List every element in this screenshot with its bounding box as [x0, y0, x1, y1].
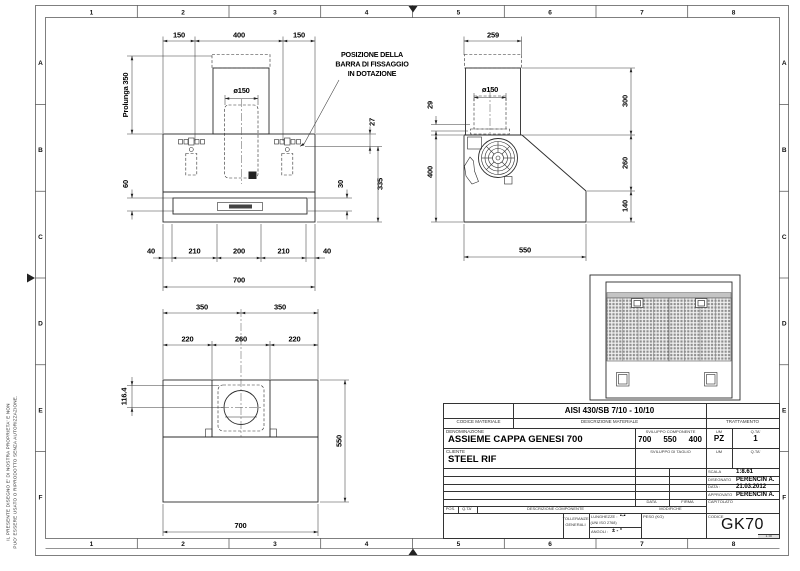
lamps	[617, 373, 718, 387]
dim-29: 29	[426, 101, 435, 109]
col-label: 4	[365, 541, 369, 548]
dim-27: 27	[368, 118, 377, 126]
col-label: 1	[90, 541, 94, 548]
note-line2: BARRA DI FISSAGGIO	[335, 60, 409, 69]
data-value: 21.03.2012	[736, 484, 766, 490]
dim-260: 260	[621, 157, 630, 169]
approvato-value: PERENCIN A.	[736, 492, 774, 498]
pos-label: POS.	[444, 507, 457, 511]
sviluppo-700: 700	[638, 436, 651, 444]
col-label: 7	[640, 10, 644, 17]
scala-label: SCALA	[708, 470, 721, 474]
plan-view: 350 350 220 260 220 116.4 550 700	[120, 303, 350, 537]
drawing-sheet: 1 2 3 4 5 6 7 8 1 2 3 4 5 6 7 8 A B C D …	[0, 0, 800, 566]
row-label: C	[782, 234, 787, 241]
row-label: A	[38, 60, 43, 67]
sviluppo-400: 400	[689, 436, 702, 444]
firma-label: FIRMA	[669, 500, 706, 504]
dim-prolunga: Prolunga 350	[121, 73, 130, 118]
dim-150-left: 150	[173, 31, 185, 40]
denominazione-value: ASSIEME CAPPA GENESI 700	[448, 435, 583, 445]
angoli-value: ± - °	[612, 529, 622, 535]
col-label: 2	[181, 541, 185, 548]
dim-140: 140	[621, 200, 630, 212]
fixing-bracket-right	[275, 138, 301, 175]
lunghezze-value: ▪-▪	[620, 514, 626, 520]
dim-30: 30	[336, 180, 345, 188]
material-spec: AISI 430/SB 7/10 - 10/10	[513, 407, 706, 415]
dim-550-side: 550	[519, 246, 531, 255]
note-line1: POSIZIONE DELLA	[341, 50, 403, 59]
dim-260-plan: 260	[235, 335, 247, 344]
qta-label: Q.TA'	[732, 430, 779, 434]
col-label: 5	[457, 541, 461, 548]
fan-motor	[465, 137, 518, 184]
chimney-extension-side	[465, 55, 522, 69]
dim-700-front: 700	[233, 276, 245, 285]
col-label: 8	[732, 10, 736, 17]
row-label: A	[782, 60, 787, 67]
col-label: 8	[732, 541, 736, 548]
col-label: 4	[365, 10, 369, 17]
capitolato-label: CAPITOLATO	[708, 500, 733, 504]
row-label: E	[782, 408, 787, 415]
dim-210-right: 210	[278, 247, 290, 256]
centre-mark-top	[409, 6, 418, 13]
descrizione-materiale-label: DESCRIZIONE MATERIALE	[513, 420, 706, 425]
disegnato-value: PERENCIN A.	[736, 477, 774, 483]
dim-550-plan: 550	[335, 435, 344, 447]
sviluppo-taglio-label: SVILUPPO DI TAGLIO	[635, 450, 706, 454]
sviluppo-550: 550	[663, 436, 676, 444]
side-view: 259 ø150 29 400 300 260 140 550	[426, 31, 636, 262]
title-block: AISI 430/SB 7/10 - 10/10 CODICE MATERIAL…	[443, 403, 780, 539]
sviluppo-componente-values: 700 550 400	[638, 436, 702, 444]
sheet-number: 1 di	[758, 535, 779, 539]
descrizione-componente-label: DESCRIZIONE COMPONENTE	[477, 507, 634, 511]
dim-40-right: 40	[323, 247, 331, 256]
col-label: 3	[273, 541, 277, 548]
dim-300: 300	[621, 95, 630, 107]
uni-iso-label: (UNI ISO 2768)	[591, 522, 617, 526]
dim-116-4: 116.4	[120, 387, 129, 405]
col-label: 7	[640, 541, 644, 548]
dim-350-left: 350	[196, 303, 208, 312]
data-col-label: DATA	[635, 500, 668, 504]
approvato-label: APPROVATO	[708, 493, 732, 497]
filter-view	[590, 275, 740, 400]
codice-materiale-label: CODICE MATERIALE	[444, 420, 513, 425]
note-line3: IN DOTAZIONE	[348, 69, 397, 78]
dim-200: 200	[233, 247, 245, 256]
row-label: B	[782, 147, 787, 154]
dim-259: 259	[487, 31, 499, 40]
dim-335: 335	[376, 178, 385, 190]
col-label: 1	[90, 10, 94, 17]
tolleranze-label-1: TOLLERANZE	[563, 517, 589, 521]
chimney-extension	[212, 55, 270, 69]
lunghezze-label: LUNGHEZZE :	[591, 515, 617, 519]
row-label: D	[38, 321, 43, 328]
dim-210-left: 210	[189, 247, 201, 256]
qta-value: 1	[732, 435, 779, 443]
row-label: E	[38, 408, 43, 415]
tolleranze-label-2: GENERALI	[563, 523, 589, 527]
col-label: 2	[181, 10, 185, 17]
um-value: PZ	[706, 435, 732, 443]
trattamento-label: TRATTAMENTO	[706, 420, 779, 425]
dim-duct-front: ø150	[233, 86, 249, 95]
qta3-label: Q.TA'	[458, 507, 476, 511]
peso-label: PESO (KG)	[643, 515, 664, 519]
col-label: 6	[548, 541, 552, 548]
centre-mark-left	[27, 274, 35, 283]
col-label: 3	[273, 10, 277, 17]
dim-400: 400	[426, 166, 435, 178]
dim-220-left: 220	[182, 335, 194, 344]
sviluppo-componente-label: SVILUPPO COMPONENTE	[635, 430, 706, 434]
um-label: UM	[706, 430, 732, 434]
dim-40-left: 40	[147, 247, 155, 256]
qta2-label: Q.TA'	[732, 450, 779, 454]
disclaimer-line1: IL PRESENTE DISEGNO E' DI NOSTRA PROPRIE…	[6, 403, 11, 540]
modifiche-label: MODIFICHE	[635, 507, 706, 511]
scala-value: 1:8.61	[736, 469, 753, 475]
chimney-front	[213, 68, 269, 134]
dim-220-right: 220	[289, 335, 301, 344]
drawing-code: GK70	[706, 517, 779, 533]
row-label: C	[38, 234, 43, 241]
dim-350-right: 350	[274, 303, 286, 312]
dim-700-plan: 700	[235, 521, 247, 530]
dim-150-right: 150	[293, 31, 305, 40]
row-label: B	[38, 147, 43, 154]
front-view: POSIZIONE DELLA BARRA DI FISSAGGIO IN DO…	[121, 31, 409, 292]
col-label: 6	[548, 10, 552, 17]
fixing-bracket-left	[179, 138, 205, 175]
data-label: DATA :	[708, 485, 720, 489]
dim-duct-side: ø150	[482, 85, 498, 94]
hood-body-side	[464, 135, 586, 222]
dim-400: 400	[233, 31, 245, 40]
side-dimensions	[431, 37, 635, 262]
angoli-label: ANGOLI :	[591, 530, 608, 534]
row-label: F	[39, 495, 43, 502]
disegnato-label: DISEGNATO	[708, 478, 731, 482]
centre-mark-bottom	[409, 549, 418, 556]
dim-60: 60	[121, 180, 130, 188]
um2-label: UM	[706, 450, 732, 454]
front-dimensions	[127, 37, 382, 292]
disclaimer-line2: PUO' ESSERE USATO O RIPRODOTTO SENZA AUT…	[13, 395, 18, 548]
row-label: D	[782, 321, 787, 328]
hood-body-plan	[163, 380, 318, 502]
cliente-value: STEEL RIF	[448, 455, 496, 465]
col-label: 5	[457, 10, 461, 17]
row-label: F	[782, 495, 786, 502]
note-leader	[300, 80, 339, 146]
